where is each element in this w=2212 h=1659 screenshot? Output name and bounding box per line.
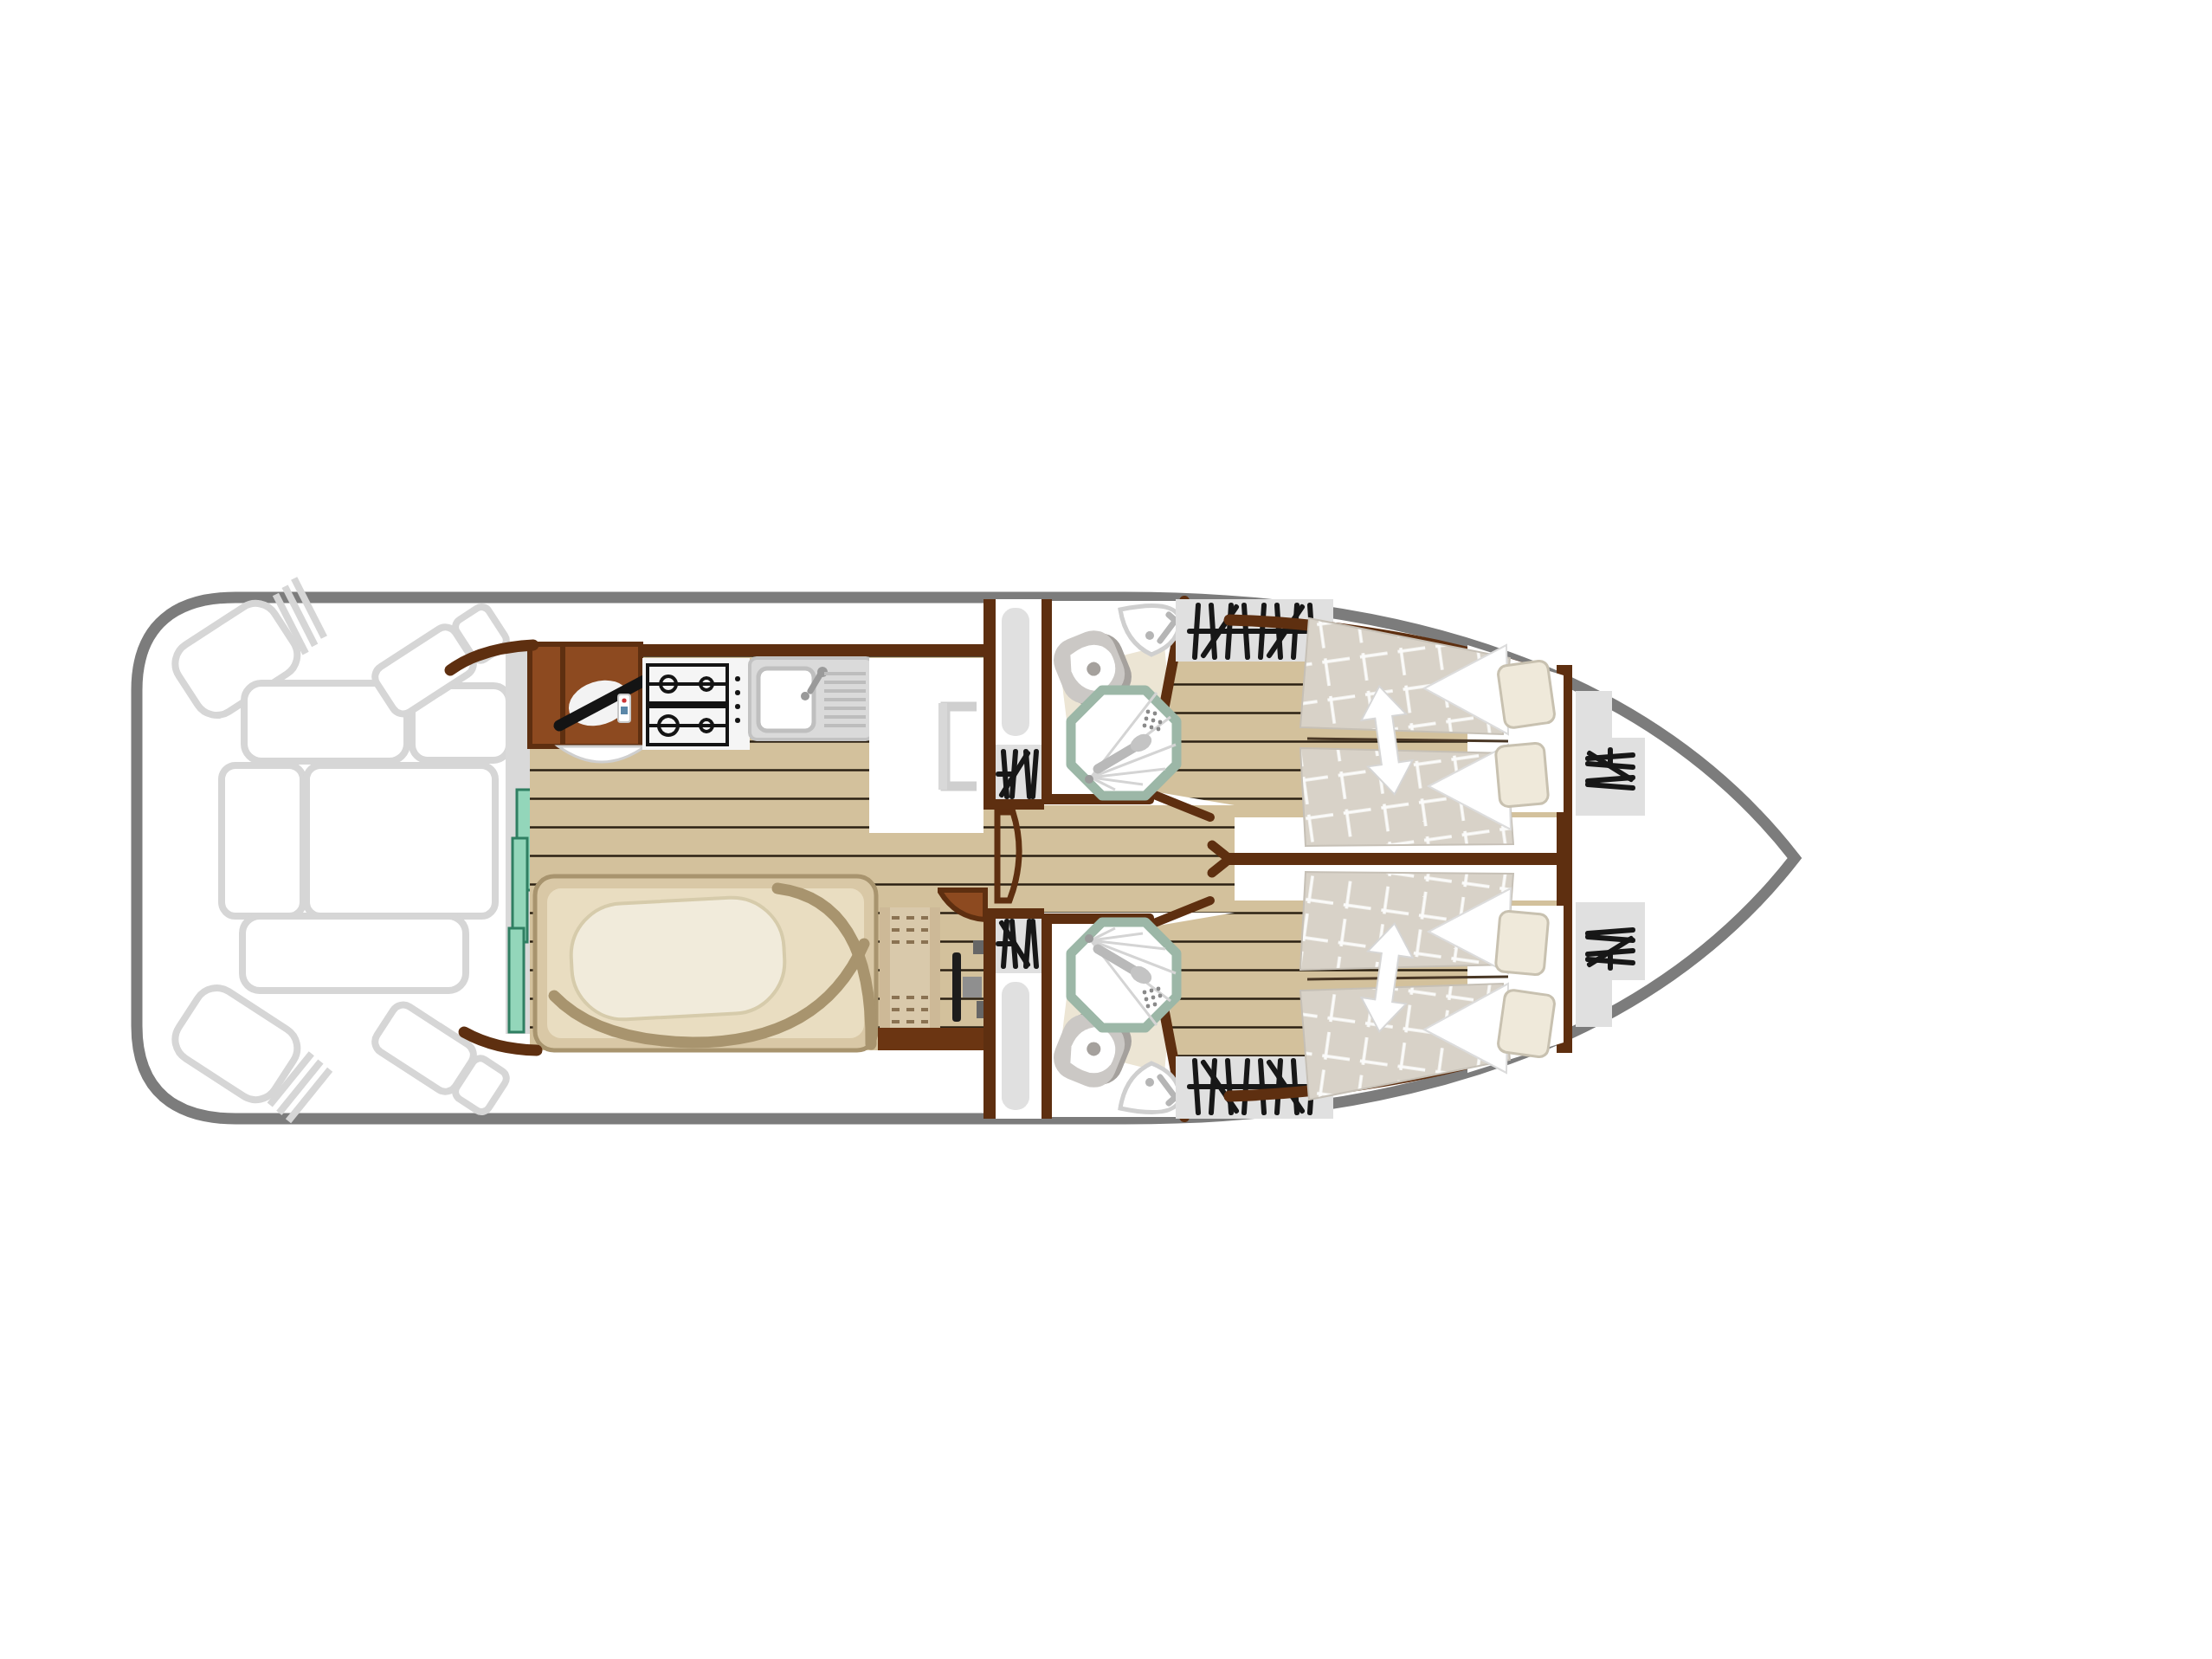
gas-hob-icon (642, 658, 750, 750)
helm-console (530, 644, 644, 746)
kitchen-sink-icon (750, 658, 873, 739)
bow-steps-port (1576, 691, 1645, 816)
fridge-cabinet-icon (869, 658, 983, 833)
boat-floor-plan (0, 0, 2212, 1659)
throttle-remote-icon (618, 694, 630, 722)
deck-bench (222, 765, 303, 916)
deck-bench (306, 765, 495, 916)
dinette-table-icon (569, 895, 788, 1023)
aft-cabinet (878, 1028, 985, 1050)
deck-bench (242, 916, 466, 991)
floor-plan-svg (0, 0, 2212, 1659)
bow-steps-starboard (1576, 902, 1645, 1027)
sideboard-icon (880, 907, 940, 1030)
